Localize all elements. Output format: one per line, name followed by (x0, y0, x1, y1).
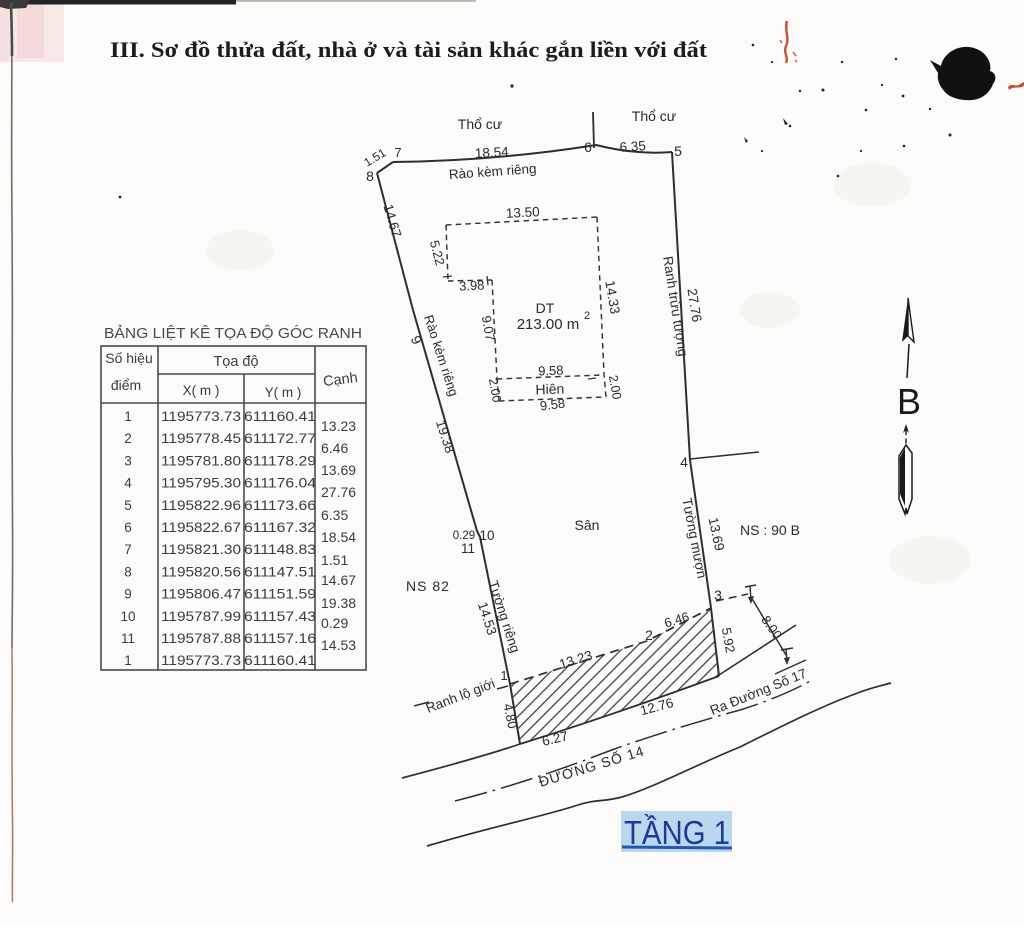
svg-text:1195822.96: 1195822.96 (161, 498, 241, 513)
svg-text:0.29: 0.29 (321, 615, 348, 631)
svg-text:4: 4 (680, 454, 688, 470)
svg-text:NS 82: NS 82 (406, 578, 450, 594)
svg-text:BẢNG LIỆT KÊ TỌA ĐỘ GÓC RANH: BẢNG LIỆT KÊ TỌA ĐỘ GÓC RANH (104, 325, 362, 342)
svg-text:1195778.45: 1195778.45 (161, 431, 241, 446)
svg-text:Thổ cư: Thổ cư (458, 116, 502, 132)
svg-text:611157.43: 611157.43 (244, 609, 316, 624)
svg-text:8: 8 (366, 168, 374, 184)
svg-text:2: 2 (584, 310, 590, 322)
svg-text:4: 4 (124, 476, 132, 491)
svg-text:DT: DT (536, 300, 555, 316)
svg-text:2: 2 (124, 431, 132, 446)
svg-text:9: 9 (124, 587, 132, 602)
svg-text:8: 8 (124, 564, 132, 579)
svg-text:1195822.67: 1195822.67 (161, 520, 241, 535)
svg-text:13.69: 13.69 (321, 462, 356, 478)
svg-text:27.76: 27.76 (321, 484, 356, 500)
svg-text:7: 7 (394, 145, 401, 160)
svg-text:213.00 m: 213.00 m (517, 316, 580, 333)
svg-text:1195787.88: 1195787.88 (161, 631, 241, 646)
svg-text:14.67: 14.67 (321, 572, 356, 588)
svg-text:611167.32: 611167.32 (244, 520, 316, 535)
svg-text:Thổ cư: Thổ cư (632, 108, 676, 124)
svg-text:1195806.47: 1195806.47 (161, 587, 241, 602)
svg-text:Sân: Sân (575, 517, 600, 533)
svg-text:7: 7 (124, 542, 132, 557)
svg-text:9.58: 9.58 (538, 363, 564, 379)
svg-text:10: 10 (120, 609, 135, 624)
svg-text:611172.77: 611172.77 (244, 431, 316, 446)
svg-text:6: 6 (584, 139, 592, 155)
svg-text:2: 2 (645, 627, 653, 643)
svg-text:611148.83: 611148.83 (244, 542, 316, 557)
svg-text:TẦNG 1: TẦNG 1 (624, 814, 730, 851)
svg-text:6.46: 6.46 (321, 440, 348, 456)
svg-text:5: 5 (674, 143, 682, 159)
svg-text:Y( m ): Y( m ) (265, 385, 302, 400)
svg-text:18.54: 18.54 (474, 144, 509, 161)
svg-text:611157.16: 611157.16 (244, 631, 316, 646)
svg-text:1: 1 (124, 653, 132, 668)
svg-text:611178.29: 611178.29 (244, 453, 316, 468)
svg-text:11: 11 (121, 631, 135, 646)
svg-text:19.38: 19.38 (321, 595, 356, 611)
svg-text:9.58: 9.58 (539, 396, 566, 414)
svg-text:14.53: 14.53 (321, 637, 356, 653)
svg-text:13.23: 13.23 (321, 418, 356, 434)
svg-text:3: 3 (714, 587, 722, 603)
svg-text:611160.41: 611160.41 (244, 409, 316, 424)
svg-text:1: 1 (124, 409, 132, 424)
svg-text:10: 10 (479, 528, 494, 543)
svg-text:18.54: 18.54 (321, 529, 356, 545)
svg-text:1195781.80: 1195781.80 (161, 453, 241, 468)
svg-text:611147.51: 611147.51 (244, 564, 316, 579)
svg-text:1195820.56: 1195820.56 (161, 564, 241, 579)
svg-text:III. Sơ đồ thửa đất, nhà ở và: III. Sơ đồ thửa đất, nhà ở và tài sản kh… (110, 37, 708, 62)
svg-text:6: 6 (124, 520, 132, 535)
svg-text:X( m ): X( m ) (183, 383, 220, 398)
svg-text:6.35: 6.35 (619, 138, 646, 155)
svg-text:3: 3 (124, 453, 132, 468)
svg-text:3.98: 3.98 (459, 277, 485, 293)
svg-text:611160.41: 611160.41 (244, 653, 316, 668)
svg-text:13.50: 13.50 (505, 204, 540, 221)
svg-text:1195773.73: 1195773.73 (161, 409, 241, 424)
svg-text:1195787.99: 1195787.99 (161, 609, 241, 624)
svg-text:6.35: 6.35 (321, 507, 348, 523)
svg-text:Hiên: Hiên (535, 381, 564, 398)
svg-text:11: 11 (461, 541, 475, 556)
svg-text:1195795.30: 1195795.30 (161, 476, 241, 491)
svg-text:điểm: điểm (111, 377, 141, 393)
svg-text:611173.66: 611173.66 (244, 498, 316, 513)
svg-text:611151.59: 611151.59 (244, 587, 316, 602)
svg-text:1: 1 (500, 668, 507, 683)
svg-text:Số hiệu: Số hiệu (105, 350, 152, 366)
svg-text:5: 5 (124, 498, 132, 513)
svg-text:NS : 90 B: NS : 90 B (740, 522, 800, 538)
svg-text:1.51: 1.51 (321, 552, 348, 568)
svg-text:Tọa độ: Tọa độ (213, 354, 258, 370)
svg-text:611176.04: 611176.04 (244, 476, 316, 491)
svg-text:1195773.73: 1195773.73 (161, 653, 241, 668)
svg-text:1195821.30: 1195821.30 (161, 542, 241, 557)
svg-text:B: B (897, 381, 921, 422)
